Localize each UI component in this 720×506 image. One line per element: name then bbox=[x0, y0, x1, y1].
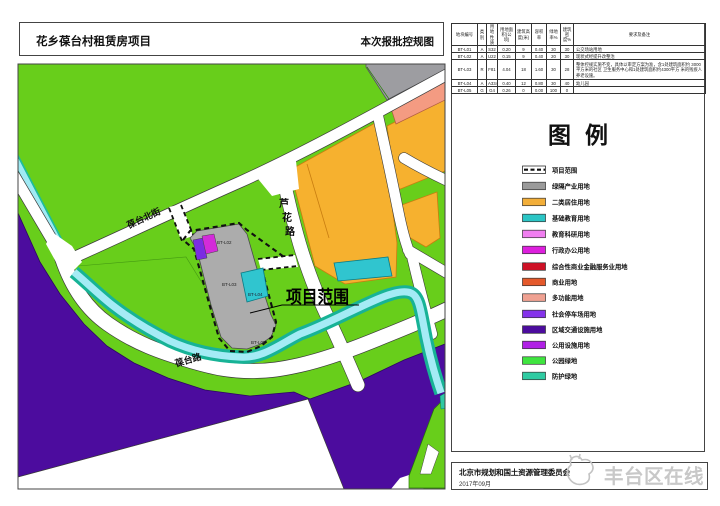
svg-text:BT-L03: BT-L03 bbox=[222, 282, 237, 287]
svg-text:区域交通设施用地: 区域交通设施用地 bbox=[552, 325, 603, 334]
svg-text:行政办公用地: 行政办公用地 bbox=[551, 246, 590, 255]
svg-text:BT-L05: BT-L05 bbox=[251, 340, 266, 345]
svg-text:二类居住用地: 二类居住用地 bbox=[552, 198, 590, 207]
svg-text:芦: 芦 bbox=[279, 197, 289, 210]
svg-text:综合性商业金融服务业用地: 综合性商业金融服务业用地 bbox=[552, 262, 628, 271]
svg-text:花: 花 bbox=[282, 211, 292, 224]
svg-text:防护绿地: 防护绿地 bbox=[552, 372, 578, 381]
svg-text:路: 路 bbox=[285, 225, 296, 238]
svg-text:商业用地: 商业用地 bbox=[552, 278, 578, 287]
svg-text:BT-L02: BT-L02 bbox=[217, 240, 232, 245]
svg-text:公园绿地: 公园绿地 bbox=[552, 356, 578, 365]
svg-text:基础教育用地: 基础教育用地 bbox=[551, 214, 590, 223]
svg-text:绿隔产业用地: 绿隔产业用地 bbox=[552, 182, 590, 191]
svg-text:公用设施用地: 公用设施用地 bbox=[552, 341, 590, 350]
svg-text:项目范围: 项目范围 bbox=[552, 165, 577, 174]
svg-text:BT-L04: BT-L04 bbox=[248, 292, 263, 297]
svg-text:教育科研用地: 教育科研用地 bbox=[552, 230, 590, 239]
svg-text:社会停车场用地: 社会停车场用地 bbox=[551, 310, 597, 319]
svg-text:项目范围: 项目范围 bbox=[286, 287, 349, 307]
svg-text:多功能用地: 多功能用地 bbox=[552, 293, 584, 302]
